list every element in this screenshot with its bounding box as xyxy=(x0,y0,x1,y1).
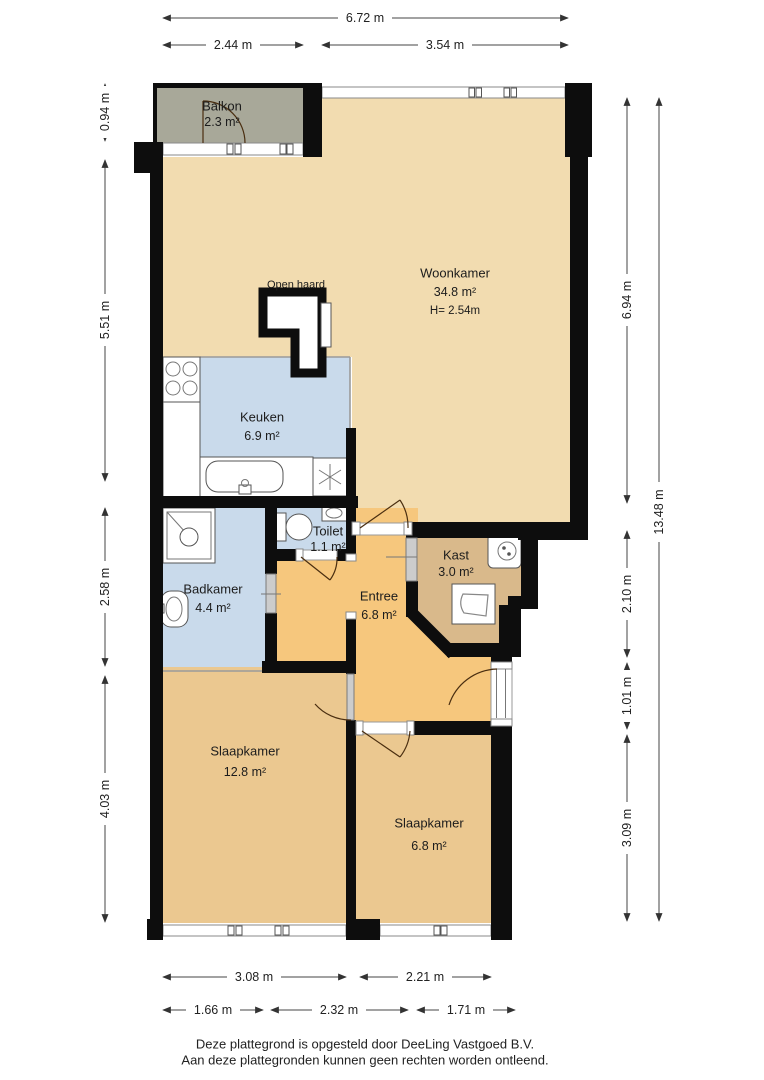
svg-text:0.94 m: 0.94 m xyxy=(98,93,112,131)
dim-bottom-room2: 2.21 m xyxy=(360,969,491,985)
dim-bottom-sub1: 1.66 m xyxy=(163,1002,263,1018)
window-balkon xyxy=(163,143,303,155)
label-slaapkamer1: Slaapkamer xyxy=(210,744,280,759)
svg-text:3.09 m: 3.09 m xyxy=(620,809,634,847)
svg-text:2.32 m: 2.32 m xyxy=(320,1003,358,1017)
label-kast: Kast xyxy=(443,548,469,563)
svg-text:6.94 m: 6.94 m xyxy=(620,281,634,319)
svg-text:3.08 m: 3.08 m xyxy=(235,970,273,984)
label-woonkamer: Woonkamer xyxy=(420,266,491,281)
svg-text:1.01 m: 1.01 m xyxy=(620,677,634,715)
window-bottom-left xyxy=(163,925,346,936)
label-entree: Entree xyxy=(360,589,398,604)
label-toilet: Toilet xyxy=(313,524,344,539)
footer-line2: Aan deze plattegronden kunnen geen recht… xyxy=(181,1053,548,1068)
label-kast-area: 3.0 m² xyxy=(438,565,473,579)
dim-left-middle: 2.58 m xyxy=(97,508,113,666)
dim-right-total: 13.48 m xyxy=(651,98,667,921)
water-heater-icon xyxy=(452,584,495,624)
label-open-haard: Open haard xyxy=(267,279,325,291)
footer-line1: Deze plattegrond is opgesteld door DeeLi… xyxy=(196,1037,534,1052)
floorplan-canvas: Balkon 2.3 m² Woonkamer 34.8 m² H= 2.54m… xyxy=(0,0,764,1080)
svg-text:3.54 m: 3.54 m xyxy=(426,38,464,52)
dim-bottom-room1: 3.08 m xyxy=(163,969,346,985)
label-entree-area: 6.8 m² xyxy=(361,608,396,622)
dim-left-lower: 4.03 m xyxy=(97,676,113,922)
label-slaapkamer2-area: 6.8 m² xyxy=(411,839,446,853)
dim-right-kast: 2.10 m xyxy=(619,531,635,657)
footer-disclaimer: Deze plattegrond is opgesteld door DeeLi… xyxy=(181,1037,548,1068)
boiler-icon xyxy=(488,534,521,568)
svg-text:13.48 m: 13.48 m xyxy=(652,489,666,534)
extractor-fan-icon xyxy=(313,458,347,496)
dim-right-lower: 3.09 m xyxy=(619,735,635,921)
dim-right-upper: 6.94 m xyxy=(619,98,635,503)
dim-bottom-sub3: 1.71 m xyxy=(417,1002,515,1018)
label-toilet-area: 1.1 m² xyxy=(310,540,345,554)
kitchen-sink-icon xyxy=(206,461,283,494)
label-slaapkamer1-area: 12.8 m² xyxy=(224,765,266,779)
toilet-icon xyxy=(276,513,312,541)
room-slaapkamer1-floor xyxy=(163,667,353,923)
label-badkamer-area: 4.4 m² xyxy=(195,601,230,615)
label-balkon-area: 2.3 m² xyxy=(204,115,239,129)
window-bottom-right xyxy=(380,925,491,936)
svg-text:4.03 m: 4.03 m xyxy=(98,780,112,818)
dim-left-upper: 5.51 m xyxy=(97,160,113,481)
stove-icon xyxy=(163,357,200,402)
dim-top-total: 6.72 m xyxy=(163,10,568,26)
svg-text:6.72 m: 6.72 m xyxy=(346,11,384,25)
svg-text:2.10 m: 2.10 m xyxy=(620,575,634,613)
label-keuken-area: 6.9 m² xyxy=(244,429,279,443)
dim-right-hall: 1.01 m xyxy=(619,663,635,729)
shower-icon xyxy=(163,508,215,563)
dim-top-left: 2.44 m xyxy=(163,37,303,53)
svg-text:2.44 m: 2.44 m xyxy=(214,38,252,52)
dim-top-right: 3.54 m xyxy=(322,37,568,53)
svg-text:1.66 m: 1.66 m xyxy=(194,1003,232,1017)
dim-left-balkon: 0.94 m xyxy=(97,84,113,141)
label-balkon: Balkon xyxy=(202,99,242,114)
dim-bottom-sub2: 2.32 m xyxy=(271,1002,408,1018)
label-keuken: Keuken xyxy=(240,410,284,425)
label-woonkamer-area: 34.8 m² xyxy=(434,285,476,299)
window-top xyxy=(322,87,565,98)
label-woonkamer-height: H= 2.54m xyxy=(430,305,480,317)
label-badkamer: Badkamer xyxy=(183,582,243,597)
label-slaapkamer2: Slaapkamer xyxy=(394,816,464,831)
svg-text:2.21 m: 2.21 m xyxy=(406,970,444,984)
svg-text:2.58 m: 2.58 m xyxy=(98,568,112,606)
svg-text:5.51 m: 5.51 m xyxy=(98,301,112,339)
svg-text:1.71 m: 1.71 m xyxy=(447,1003,485,1017)
